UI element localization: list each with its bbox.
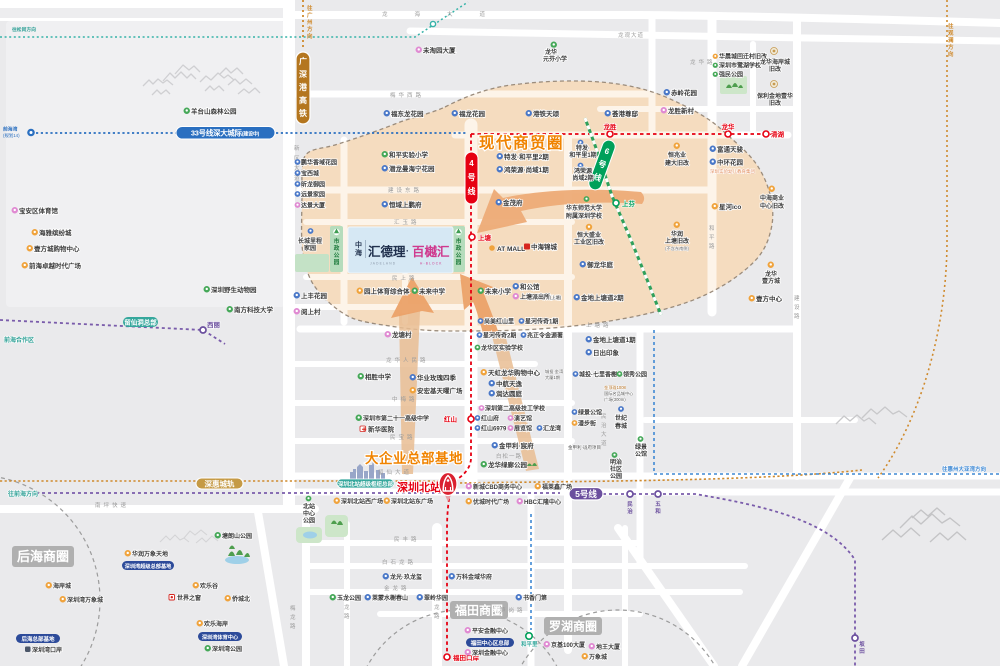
svg-text:金地上塘道2期: 金地上塘道2期 [580,293,624,302]
svg-text:漫步街: 漫步街 [578,420,596,428]
svg-text:民上路: 民上路 [392,274,418,282]
svg-text:华业玫瑰四季: 华业玫瑰四季 [417,373,457,382]
svg-text:潜龙曼海宁花园: 潜龙曼海宁花园 [389,164,435,173]
svg-text:金茂府: 金茂府 [502,198,523,207]
svg-text:红山6979: 红山6979 [481,425,507,433]
svg-text:上丰花园: 上丰花园 [301,291,328,300]
svg-text:福田中心区总部: 福田中心区总部 [470,639,510,647]
svg-text:前海卓越时代广场: 前海卓越时代广场 [29,261,82,270]
svg-text:海岸城: 海岸城 [53,582,71,590]
svg-text:龙光·玖龙玺: 龙光·玖龙玺 [390,573,422,581]
svg-text:后海总部基地: 后海总部基地 [21,635,55,643]
svg-text:深圳湾超级总部基地: 深圳湾超级总部基地 [125,562,173,570]
svg-text:新城CBD商务中心: 新城CBD商务中心 [473,483,522,491]
svg-text:留仙大道: 留仙大道 [378,468,412,476]
svg-text:JADELAND: JADELAND [370,262,396,266]
svg-text:长城里程: 长城里程 [298,237,322,245]
svg-text:百樾汇: 百樾汇 [412,244,450,259]
svg-text:城投·七里香榭: 城投·七里香榭 [579,371,617,379]
svg-text:莱蒙水榭春山: 莱蒙水榭春山 [372,594,408,602]
svg-text:深圳北站西广场: 深圳北站西广场 [341,498,383,506]
svg-text:安宏基天曜广场: 安宏基天曜广场 [417,386,463,395]
svg-text:达景大厦: 达景大厦 [301,202,326,210]
svg-text:和平实验小学: 和平实验小学 [388,150,429,159]
svg-text:中环花园: 中环花园 [717,158,744,167]
svg-text:深圳湾体育中心: 深圳湾体育中心 [202,633,239,641]
svg-text:龙华绿廊公园: 龙华绿廊公园 [487,460,528,469]
svg-text:旧改: 旧改 [769,99,782,107]
svg-text:福龙花园: 福龙花园 [458,109,486,118]
svg-text:方: 方 [307,25,313,33]
svg-text:强民公园: 强民公园 [719,71,743,79]
svg-text:上塘派出所(上塘): 上塘派出所(上塘) [520,293,562,301]
svg-text:港: 港 [299,82,308,92]
svg-text:御龙华庭: 御龙华庭 [586,260,614,269]
svg-text:后海商圈: 后海商圈 [17,549,69,564]
svg-text:绿景公馆: 绿景公馆 [578,409,602,417]
svg-text:中海商业: 中海商业 [760,194,784,202]
svg-text:天虹龙华购物中心: 天虹龙华购物中心 [488,368,541,377]
svg-text:华东师范大学: 华东师范大学 [566,204,602,212]
svg-text:深圳第二高级技工学校: 深圳第二高级技工学校 [485,405,546,413]
svg-text:华润: 华润 [671,230,683,238]
svg-text:家园: 家园 [304,244,316,252]
svg-text:鹏华香域花园: 鹏华香域花园 [301,159,337,167]
svg-text:民: 民 [627,500,633,508]
svg-text:公园: 公园 [610,472,622,480]
svg-text:公园: 公园 [303,517,315,525]
svg-text:海: 海 [355,248,362,257]
svg-text:特发·: 特发· [576,144,590,152]
svg-text:龙华人民路: 龙华人民路 [386,356,429,364]
svg-text:金龙路: 金龙路 [384,584,410,592]
svg-text:龙华路: 龙华路 [690,58,716,66]
svg-text:公: 公 [334,252,340,259]
svg-text:西丽: 西丽 [207,321,221,329]
svg-text:福田商圈: 福田商圈 [454,603,503,618]
svg-text:田: 田 [859,648,865,655]
svg-text:赤岭花园: 赤岭花园 [671,88,698,97]
svg-text:高: 高 [299,95,307,105]
svg-text:4: 4 [469,159,474,168]
svg-text:远景家园: 远景家园 [301,191,325,199]
svg-text:平: 平 [709,234,715,241]
svg-text:深圳湾万象城: 深圳湾万象城 [67,596,103,604]
svg-text:路: 路 [290,622,296,630]
svg-text:广场(300m): 广场(300m) [604,396,626,403]
svg-text:深: 深 [299,69,307,79]
svg-text:工业区旧改: 工业区旧改 [574,238,605,246]
svg-text:金甲利·宸府: 金甲利·宸府 [498,441,534,450]
svg-text:万象城: 万象城 [588,653,607,661]
svg-text:建设东路: 建设东路 [388,186,422,194]
svg-text:未来中学: 未来中学 [419,287,446,296]
svg-text:留仙洞总部: 留仙洞总部 [124,318,157,327]
svg-text:壹方中心: 壹方中心 [756,294,783,303]
svg-text:星河ico: 星河ico [719,202,741,211]
svg-text:园上体育综合体: 园上体育综合体 [364,287,410,296]
svg-text:路: 路 [344,612,350,620]
svg-text:南坪快速: 南坪快速 [95,501,129,509]
svg-text:汇龙湾: 汇龙湾 [543,425,561,433]
svg-text:龙海大道: 龙海大道 [382,10,512,18]
svg-text:H-BLOCK: H-BLOCK [420,262,443,266]
svg-text:壹方城: 壹方城 [762,277,780,285]
svg-text:上芬: 上芬 [622,199,636,208]
svg-text:广: 广 [299,56,307,66]
svg-text:和: 和 [655,507,661,515]
svg-text:龙观大道: 龙观大道 [618,31,644,39]
svg-text:未淘园大厦: 未淘园大厦 [423,46,456,55]
svg-text:往松岗方向: 往松岗方向 [12,26,36,33]
svg-text:·: · [406,246,409,256]
svg-text:未来小学: 未来小学 [485,287,512,296]
svg-text:荟港尊邸: 荟港尊邸 [611,109,639,118]
svg-text:相胜中学: 相胜中学 [365,372,392,381]
svg-text:方: 方 [948,43,954,51]
svg-text:白松一路: 白松一路 [496,452,522,460]
svg-text:上塘路: 上塘路 [586,321,612,329]
svg-text:政: 政 [456,244,462,252]
svg-text:京基100大厦: 京基100大厦 [551,641,586,649]
svg-text:五: 五 [655,501,661,508]
svg-text:AT MALL: AT MALL [497,246,525,253]
svg-text:福东龙花园: 福东龙花园 [390,109,424,118]
svg-text:民丰路: 民丰路 [394,535,420,543]
svg-text:园: 园 [334,258,340,266]
svg-text:广: 广 [307,11,313,19]
svg-text:国际名品城中心: 国际名品城中心 [604,390,634,397]
svg-text:欢乐海岸: 欢乐海岸 [203,620,228,628]
svg-text:现代商贸圈: 现代商贸圈 [479,133,564,152]
svg-text:白石龙路: 白石龙路 [382,558,416,566]
svg-text:铁: 铁 [299,108,307,118]
svg-text:政: 政 [334,244,340,252]
svg-text:路: 路 [709,242,715,250]
svg-text:万科金域华府: 万科金域华府 [455,573,492,581]
svg-text:上塘: 上塘 [478,233,492,242]
svg-text:5号线: 5号线 [575,489,597,499]
svg-text:园: 园 [456,258,462,266]
svg-text:向: 向 [307,32,313,40]
svg-text:汇德理: 汇德理 [368,244,406,259]
svg-text:富通天骏: 富通天骏 [717,145,744,154]
svg-text:宝西城: 宝西城 [301,170,319,178]
svg-text:恒兆业: 恒兆业 [668,151,686,159]
svg-text:大: 大 [601,430,607,438]
svg-text:星河传奇1期: 星河传奇1期 [525,318,558,326]
svg-text:往: 往 [306,4,313,12]
svg-text:平安金融中心: 平安金融中心 [472,627,508,635]
svg-text:深圳北站超级枢纽总部: 深圳北站超级枢纽总部 [338,480,394,488]
svg-text:公: 公 [456,252,462,259]
svg-text:龙华区实验学校: 龙华区实验学校 [481,344,524,352]
svg-text:特发·和平里2期: 特发·和平里2期 [504,152,549,161]
svg-text:中心: 中心 [303,510,315,518]
svg-text:福莱鑫广场: 福莱鑫广场 [541,483,572,491]
svg-text:往: 往 [947,22,954,30]
svg-text:深圳野生动物园: 深圳野生动物园 [211,285,257,294]
svg-text:中梅路: 中梅路 [392,395,418,403]
svg-text:号: 号 [468,173,476,182]
svg-text:优城时代广场: 优城时代广场 [473,498,509,506]
svg-text:昕龙御园: 昕龙御园 [301,181,325,189]
svg-text:欢乐谷: 欢乐谷 [199,582,219,590]
svg-text:红山府: 红山府 [481,415,499,423]
svg-text:(规划14): (规划14) [3,132,20,139]
svg-text:中航天逸: 中航天逸 [496,379,523,388]
svg-text:中心旧改: 中心旧改 [760,202,785,210]
svg-text:上塘旧改: 上塘旧改 [665,237,690,245]
svg-text:尚域2期: 尚域2期 [572,174,593,182]
svg-text:向: 向 [948,50,954,58]
svg-text:北站: 北站 [303,503,315,511]
svg-text:兆正令金源著: 兆正令金源著 [527,332,563,340]
svg-text:治: 治 [601,421,607,429]
svg-text:龙华: 龙华 [545,48,557,56]
svg-text:线: 线 [468,186,476,196]
svg-text:市: 市 [334,237,340,245]
svg-text:阅上村: 阅上村 [301,307,321,316]
svg-text:市: 市 [456,237,462,245]
svg-text:大企业总部基地: 大企业总部基地 [365,450,463,466]
svg-text:澜: 澜 [948,36,954,44]
svg-text:尚美红山里: 尚美红山里 [484,318,514,326]
svg-text:梅: 梅 [290,604,296,612]
svg-text:恒域上鹏府: 恒域上鹏府 [389,200,422,209]
svg-text:观: 观 [948,29,954,37]
svg-text:清湖: 清湖 [771,130,785,139]
svg-text:治: 治 [627,507,633,515]
svg-text:保利金地壹华: 保利金地壹华 [756,92,793,100]
svg-text:世界之窗: 世界之窗 [177,594,201,602]
svg-text:梅华西路: 梅华西路 [390,91,424,99]
svg-text:海雅缤纷城: 海雅缤纷城 [39,228,72,237]
svg-text:深圳实验幼儿教育集团: 深圳实验幼儿教育集团 [710,168,755,175]
svg-text:建: 建 [794,294,800,302]
svg-text:领秀公园: 领秀公园 [623,371,647,379]
svg-text:日出印象: 日出印象 [593,348,620,357]
svg-text:HBC汇隆中心: HBC汇隆中心 [524,498,561,506]
svg-text:新: 新 [294,144,300,152]
svg-text:深圳湾公园: 深圳湾公园 [212,645,242,653]
svg-text:深圳湾口岸: 深圳湾口岸 [32,646,62,654]
svg-text:龙华海岸城: 龙华海岸城 [760,58,790,66]
svg-text:侨城北: 侨城北 [231,595,250,603]
svg-text:旧改: 旧改 [769,65,782,73]
svg-text:壹方城购物中心: 壹方城购物中心 [34,244,80,253]
svg-text:华润万象天地: 华润万象天地 [132,550,168,558]
svg-text:(不含东南侧): (不含东南侧) [665,245,689,252]
svg-text:道: 道 [601,439,607,447]
svg-text:展览馆: 展览馆 [514,425,532,433]
svg-text:恒大盛业: 恒大盛业 [577,231,601,239]
svg-text:绿景: 绿景 [635,443,647,451]
svg-text:前海湾: 前海湾 [3,126,18,133]
svg-text:中: 中 [355,240,362,249]
svg-text:前海合作区: 前海合作区 [4,336,34,344]
svg-text:路: 路 [434,612,440,620]
svg-text:罗湖商圈: 罗湖商圈 [549,619,597,634]
svg-text:深圳市鹭湖学校: 深圳市鹭湖学校 [719,62,762,70]
svg-text:润达圆庭: 润达圆庭 [496,389,523,398]
svg-text:附属深圳学校: 附属深圳学校 [566,212,603,220]
svg-text:鸿荣源: 鸿荣源 [574,167,592,175]
svg-text:深圳北站: 深圳北站 [397,480,441,494]
svg-text:中海锦城: 中海锦城 [531,242,558,251]
svg-text:羊台山森林公园: 羊台山森林公园 [191,107,237,116]
svg-text:深圳金融中心: 深圳金融中心 [472,649,508,657]
svg-text:社区: 社区 [609,465,622,473]
svg-text:玉龙公园: 玉龙公园 [337,594,361,602]
svg-text:民宝路: 民宝路 [390,433,416,441]
svg-text:书香门第: 书香门第 [523,594,547,602]
svg-text:春城: 春城 [614,422,627,430]
svg-text:龙塘村: 龙塘村 [391,330,412,339]
svg-text:深圳北站东广场: 深圳北站东广场 [391,498,433,506]
svg-text:红山: 红山 [444,415,457,424]
svg-text:路: 路 [794,312,800,320]
svg-text:世纪: 世纪 [615,414,627,422]
svg-text:公馆: 公馆 [635,450,647,458]
svg-text:龙华: 龙华 [765,270,777,278]
svg-text:建大旧改: 建大旧改 [665,159,690,167]
svg-text:和平里: 和平里 [521,640,538,648]
svg-text:坂: 坂 [859,640,865,648]
svg-text:和公馆: 和公馆 [519,282,540,291]
svg-text:金甲利·珑府项目: 金甲利·珑府项目 [568,444,601,451]
svg-text:龙: 龙 [434,603,440,611]
svg-text:龙: 龙 [290,613,296,621]
svg-text:演艺馆: 演艺馆 [514,415,532,423]
svg-text:龙胜新村: 龙胜新村 [667,106,695,115]
svg-text:笋岗路: 笋岗路 [500,606,526,614]
svg-text:元芬小学: 元芬小学 [543,55,567,63]
svg-text:新华医院: 新华医院 [368,425,395,434]
svg-text:鸿荣源·尚域1期: 鸿荣源·尚域1期 [504,165,549,174]
svg-text:和平里1期: 和平里1期 [568,151,596,159]
svg-text:设: 设 [794,303,800,311]
svg-text:汇玉路: 汇玉路 [394,218,420,226]
svg-text:南方科技大学: 南方科技大学 [234,305,274,314]
svg-text:金地上塘道1期: 金地上塘道1期 [592,335,636,344]
svg-text:翠岭华园: 翠岭华园 [424,594,448,602]
svg-text:深圳市第二十一高级中学: 深圳市第二十一高级中学 [363,415,429,423]
svg-text:大厦1期: 大厦1期 [545,374,560,381]
svg-text:明治: 明治 [610,458,622,466]
svg-text:宝安区体育馆: 宝安区体育馆 [19,206,59,215]
svg-text:龙华: 龙华 [721,122,736,131]
svg-text:和: 和 [709,224,715,232]
svg-text:塘朗山公园: 塘朗山公园 [222,532,252,540]
svg-text:龙: 龙 [344,603,350,611]
svg-text:深惠城轨: 深惠城轨 [205,479,235,489]
svg-text:往前海方向: 往前海方向 [8,490,38,498]
svg-text:金顶珑1008: 金顶珑1008 [604,384,627,391]
svg-text:港铁天颂: 港铁天颂 [533,109,560,118]
svg-text:州: 州 [306,19,313,26]
svg-text:星河传奇2期: 星河传奇2期 [483,332,516,340]
svg-text:龙胜: 龙胜 [603,122,618,131]
svg-text:往惠州大亚湾方向: 往惠州大亚湾方向 [941,465,987,473]
svg-text:地王大厦: 地王大厦 [596,643,621,651]
svg-text:城投·金湾: 城投·金湾 [545,368,563,375]
